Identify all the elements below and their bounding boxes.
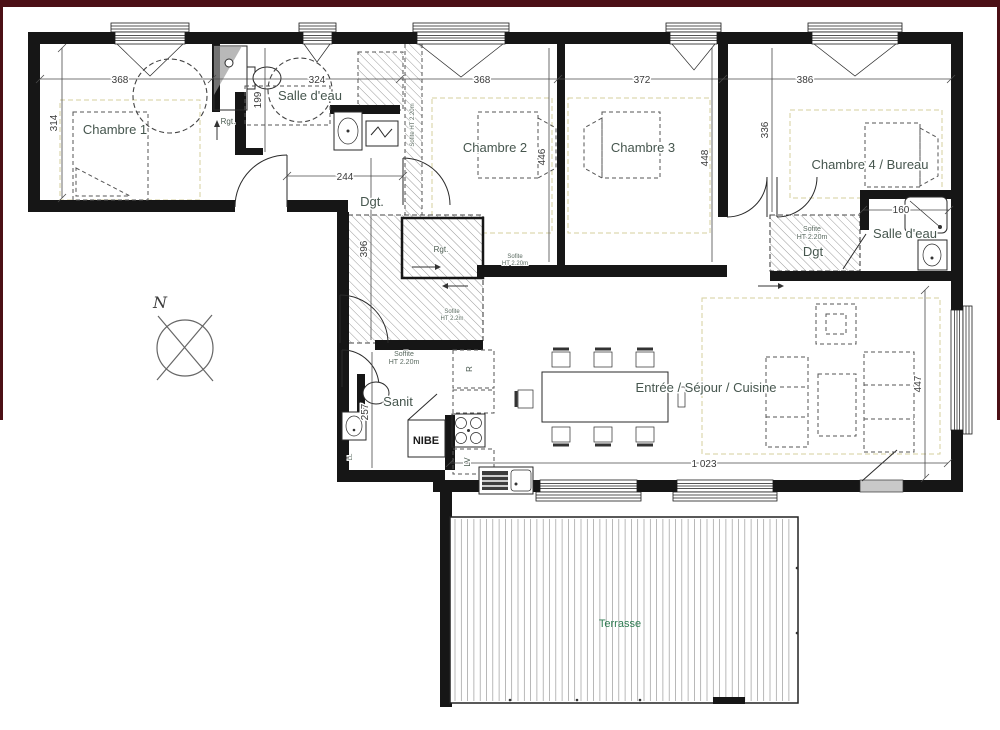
door-chambre3 <box>727 177 767 217</box>
dim-368-chambre1: 368 <box>112 75 129 86</box>
kitchen-sink <box>479 467 533 494</box>
rgt2-label: Rgt. <box>434 245 449 254</box>
room-label-dgt2: Dgt <box>803 244 824 259</box>
dim-386-chambre4: 386 <box>797 75 814 86</box>
side-table <box>816 304 856 344</box>
terrace <box>450 517 798 704</box>
room-label-chambre3: Chambre 3 <box>611 140 675 155</box>
dim-447: 447 <box>913 375 924 392</box>
room-label-chambre4: Chambre 4 / Bureau <box>811 157 928 172</box>
dim-396: 396 <box>359 240 370 257</box>
door-terrace <box>860 450 903 492</box>
dining-set <box>516 349 685 445</box>
dim-257: 257 <box>360 403 371 420</box>
window-chambre4 <box>808 23 902 76</box>
room-label-salle-eau2: Salle d'eau <box>873 226 937 241</box>
dim-314: 314 <box>49 114 60 131</box>
window-chambre3 <box>666 23 721 70</box>
living-furniture <box>766 304 914 452</box>
sink2 <box>918 240 947 270</box>
window-sejour-1 <box>536 480 641 501</box>
dim-372-chambre3: 372 <box>634 75 651 86</box>
rgt1-label: Rgt. <box>221 117 236 126</box>
nibe-label: NIBE <box>413 435 439 447</box>
dim-448: 448 <box>700 149 711 166</box>
sofa-left <box>766 357 808 447</box>
laundry-label: LL <box>348 453 354 460</box>
dim-446: 446 <box>537 148 548 165</box>
window-chambre2 <box>413 23 509 77</box>
soffit-ch2-line1: Sofite <box>507 254 523 260</box>
soffit-dgt2-line1: Sofite <box>803 226 821 233</box>
dining-chairs <box>516 349 685 445</box>
dim-160: 160 <box>893 205 910 216</box>
soffit-sanit-line2: HT 2.20m <box>389 359 420 366</box>
annotations: Rgt. Rgt. NIBE R LV LL Sofite HT 2.20m S… <box>214 103 827 466</box>
window-chambre1 <box>111 23 189 76</box>
window-sejour-2 <box>673 480 777 501</box>
dim-336: 336 <box>760 121 771 138</box>
door-chambre4 <box>777 177 817 217</box>
dim-368-chambre2: 368 <box>474 75 491 86</box>
soffit-hall-line2: HT 2.2m <box>441 316 464 322</box>
room-label-chambre2: Chambre 2 <box>463 140 527 155</box>
dim-244: 244 <box>337 172 354 183</box>
dishwasher-label: LV <box>463 457 472 467</box>
fridge-label: R <box>465 366 474 372</box>
door-hall-entry <box>235 155 287 207</box>
floor-plan-page: N 368 324 368 372 386 314 199 446 448 <box>0 0 1000 730</box>
dim-1023: 1 023 <box>691 459 716 470</box>
soffit-ch2-line2: HT 2.20m <box>502 261 528 267</box>
room-label-terrasse: Terrasse <box>599 618 641 630</box>
floor-plan-drawing: N 368 324 368 372 386 314 199 446 448 <box>0 0 1000 730</box>
soffit-hall-line1: Sofite <box>444 309 460 315</box>
room-label-sejour: Entrée / Séjour / Cuisine <box>636 380 777 395</box>
window-salle-eau1 <box>299 23 336 62</box>
dim-199: 199 <box>253 91 264 108</box>
dim-324-salle-eau1: 324 <box>309 75 326 86</box>
room-label-salle-eau1: Salle d'eau <box>278 88 342 103</box>
soffit-strip-label: Sofite HT 2.20m <box>410 103 416 146</box>
coffee-table <box>818 374 856 436</box>
room-label-sanit: Sanit <box>383 394 413 409</box>
soffit-sanit-line1: Soffite <box>394 351 414 358</box>
soffit-dgt2-line2: HT 2.20m <box>797 234 828 241</box>
window-sejour-right <box>951 306 972 434</box>
room-label-dgt1: Dgt. <box>360 194 384 209</box>
bed-chambre4 <box>865 123 920 187</box>
compass: N <box>152 293 213 381</box>
room-label-chambre1: Chambre 1 <box>83 122 147 137</box>
north-label: N <box>152 293 168 312</box>
sofa-right <box>864 352 914 452</box>
